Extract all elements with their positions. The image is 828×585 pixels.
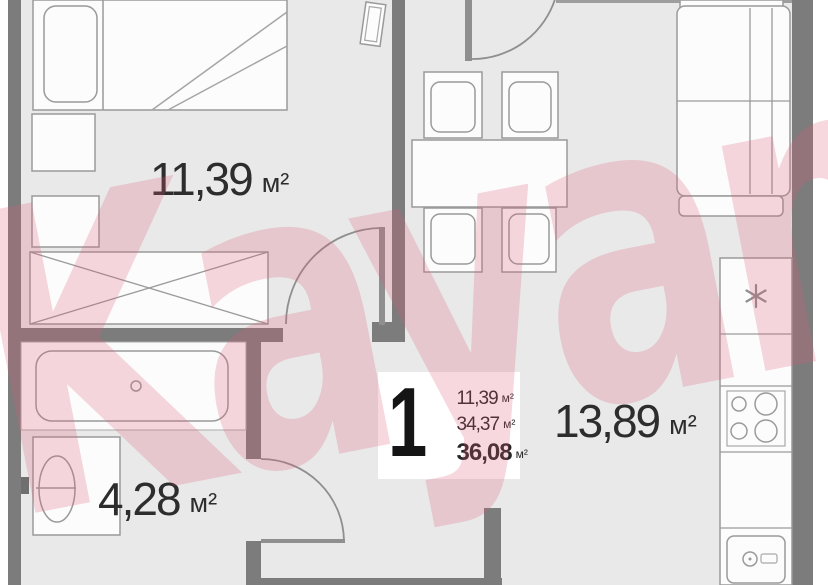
wall-hall-vertical	[392, 0, 405, 322]
apartment-info-box: 1 11,39м² 34,37м² 36,08м²	[378, 372, 520, 479]
room-area-unit: м²	[190, 488, 218, 518]
room-label-bathroom: 4,28м²	[98, 476, 217, 522]
entrance-door-leaf	[465, 0, 472, 61]
area-total-row: 36,08м²	[457, 437, 528, 469]
area-secondary-row: 34,37м²	[457, 412, 528, 438]
room-area-value: 4,28	[98, 473, 180, 525]
kitchen-sink-icon	[727, 536, 785, 583]
wall-bedroom-bathroom-divider	[21, 328, 283, 342]
area-living-value: 11,39	[457, 388, 498, 409]
dining-chair	[424, 208, 482, 272]
chair-seat	[431, 82, 475, 132]
wall-bottom-fragment	[261, 578, 502, 585]
sink-basin	[727, 536, 785, 583]
room-area-unit: м²	[262, 168, 290, 198]
wardrobe	[30, 252, 268, 324]
toilet-bowl	[39, 456, 75, 522]
chair-seat	[509, 82, 551, 132]
dining-chair	[502, 208, 556, 272]
dining-chair	[424, 72, 482, 138]
area-secondary-unit: м²	[503, 417, 515, 431]
room-area-unit: м²	[669, 410, 697, 440]
area-secondary-value: 34,37	[457, 414, 500, 435]
chair-seat	[431, 214, 475, 264]
bed-pillow	[44, 6, 97, 102]
room-label-kitchen-living: 13,89м²	[554, 398, 697, 444]
bathtub-body	[36, 351, 228, 421]
toilet-pipe	[21, 477, 29, 494]
area-living-row: 11,39м²	[457, 386, 528, 412]
bed	[33, 0, 287, 110]
room-label-bedroom: 11,39м²	[150, 156, 289, 202]
area-total-value: 36,08	[457, 439, 512, 466]
sofa	[677, 0, 790, 216]
dining-chair	[502, 72, 558, 138]
room-area-value: 11,39	[150, 153, 252, 205]
bedroom-door-leaf	[379, 227, 385, 325]
chair-seat	[509, 214, 549, 264]
nightstand	[32, 114, 95, 171]
area-total-unit: м²	[516, 447, 528, 461]
wall-bathroom-right-lower	[246, 541, 261, 585]
apartment-areas: 11,39м² 34,37м² 36,08м²	[457, 386, 528, 479]
sofa-armrest-bottom	[679, 196, 783, 216]
room-area-value: 13,89	[554, 395, 659, 447]
rooms-count-badge: 1	[388, 382, 427, 479]
bathroom-door-leaf	[261, 539, 345, 543]
bathtub	[21, 342, 246, 430]
wall-bathroom-right-upper	[246, 342, 261, 459]
nightstand	[32, 196, 99, 247]
outer-wall-right	[792, 0, 813, 585]
area-living-unit: м²	[502, 391, 514, 405]
dining-table	[412, 140, 567, 207]
wall-kitchen-stub	[484, 508, 501, 585]
outer-wall-left	[8, 0, 21, 585]
floorplan-canvas: 11,39м² 4,28м² 13,89м² 1 11,39м² 34,37м²…	[0, 0, 828, 585]
wall-hall-stub	[372, 322, 405, 342]
kitchen-counter	[720, 258, 792, 585]
